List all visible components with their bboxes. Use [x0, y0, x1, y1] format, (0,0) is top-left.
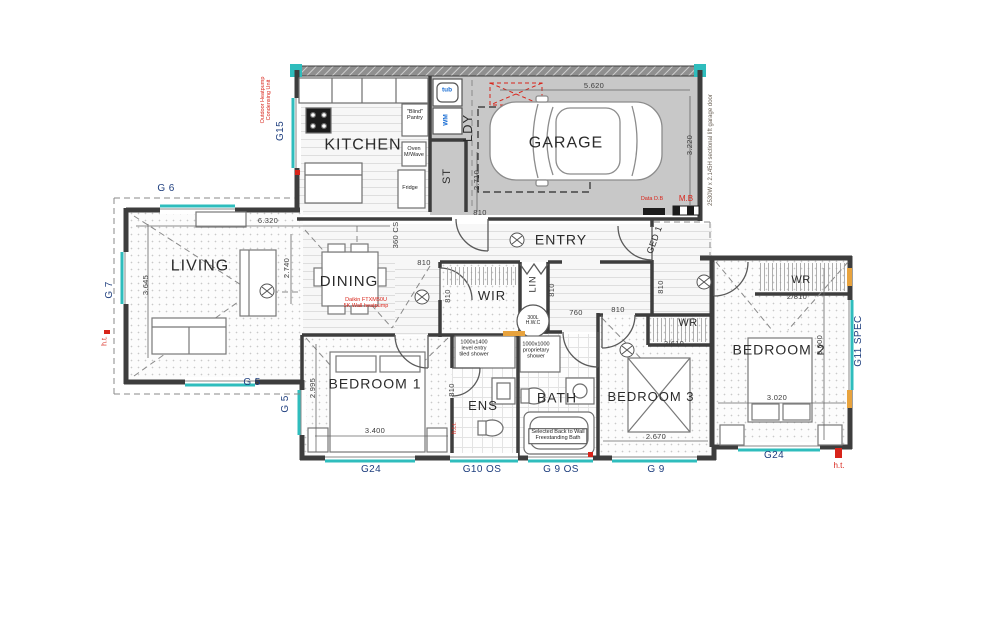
- fridge-label: Fridge: [402, 186, 418, 192]
- dim-810-a: 810: [473, 209, 486, 217]
- bedroom2-label: BEDROOM 2: [732, 343, 825, 358]
- bed1: [308, 352, 447, 452]
- dim-bed1-depth: 2.995: [309, 378, 317, 398]
- dim-810-c: 810: [444, 289, 452, 302]
- floorplan-canvas: KITCHEN GARAGE LDY ST ENTRY LIVING DININ…: [0, 0, 1000, 620]
- window-g24-a: G24: [361, 465, 381, 476]
- data-db-label: Data D.B: [641, 197, 663, 203]
- indoor-heatpump-note: Daikin FTXM50U5K Wall heatpump: [344, 298, 389, 310]
- dim-bed2-depth: 3.000: [816, 335, 824, 355]
- outdoor-heatpump-note: Outdoor HeatpumpCondensing Unit: [261, 77, 273, 124]
- oven-label: OvenM/Wave: [404, 147, 424, 159]
- dim-810-f: 810: [611, 306, 624, 314]
- mb-label: M.B: [679, 195, 693, 203]
- dim-garage-width: 5.620: [584, 82, 604, 90]
- dim-810-d: 810: [548, 283, 556, 296]
- wr-bed2-label: WR: [791, 275, 810, 287]
- window-g6: G 6: [157, 184, 174, 195]
- dining-label: DINING: [320, 274, 379, 290]
- wir-label: WIR: [478, 289, 506, 303]
- wr-bed3-label: WR: [678, 318, 697, 330]
- window-g9: G 9: [647, 465, 664, 476]
- store-label: ST: [442, 168, 454, 184]
- garage-label: GARAGE: [529, 136, 603, 153]
- dim-cs: 360 CS: [392, 222, 400, 249]
- floorplan-linework: [0, 0, 1000, 620]
- dim-wr-bed2: 2/810: [787, 293, 807, 301]
- dim-810-b: 810: [417, 259, 430, 267]
- dim-bed1-width: 3.400: [365, 427, 385, 435]
- window-g24-b: G24: [764, 451, 784, 462]
- tub-label: tub: [442, 88, 452, 95]
- living-label: LIVING: [171, 259, 229, 276]
- dim-810-e: 810: [448, 383, 456, 396]
- dim-living-depth: 3.645: [142, 275, 150, 295]
- hwc-label: 300LH.W.C: [526, 316, 540, 327]
- window-g15: G15: [276, 121, 287, 141]
- ht-label-left: h.t.: [101, 336, 108, 346]
- window-g10os: G10 OS: [463, 465, 502, 476]
- ens-shower-note: 1000x1400level entrytiled shower: [459, 340, 488, 357]
- window-g5-a: G 5: [243, 378, 260, 389]
- dim-bed2-width: 3.020: [767, 394, 787, 402]
- dim-bed3-width: 2.670: [646, 433, 666, 441]
- kitchen-label: KITCHEN: [324, 138, 401, 155]
- meter-boards: [643, 206, 699, 215]
- htr-label: h.t.r.: [452, 422, 458, 434]
- bedroom1-label: BEDROOM 1: [328, 377, 421, 392]
- living-furniture: [152, 212, 276, 354]
- dim-dining-depth: 2.740: [283, 258, 291, 278]
- linen-label: LIN: [528, 275, 537, 292]
- dim-garage-depth: 3.220: [686, 135, 694, 155]
- ht-label-right: h.t.: [833, 462, 844, 470]
- freestanding-bath-note: Selected Back to WallFreestanding Bath: [528, 428, 587, 444]
- washing-machine-label: WM: [444, 114, 451, 126]
- ensuite-label: ENS: [468, 399, 498, 413]
- window-g11: G11 SPEC: [854, 315, 865, 366]
- laundry-label: LDY: [461, 114, 475, 142]
- dim-living-width: 6.320: [258, 217, 278, 225]
- wir-rail: [444, 267, 518, 285]
- window-g5-b: G 5: [281, 395, 292, 412]
- window-g9os: G 9 OS: [543, 465, 579, 476]
- pantry-label: "Blind"Pantry: [407, 110, 423, 122]
- dim-760: 760: [569, 309, 582, 317]
- dim-ldy: 2.710: [473, 170, 481, 190]
- entry-label: ENTRY: [535, 233, 587, 248]
- bedroom3-label: BEDROOM 3: [607, 390, 694, 404]
- dim-wr-bed3: 2/610: [664, 340, 684, 348]
- garage-door-note: 2530W x 2.145H sectional lift garage doo…: [708, 94, 714, 206]
- window-g7: G 7: [105, 281, 116, 298]
- dim-810-g: 810: [657, 280, 665, 293]
- bath-label: BATH: [537, 391, 577, 406]
- bath-shower-note: 1000x1000proprietaryshower: [522, 342, 549, 359]
